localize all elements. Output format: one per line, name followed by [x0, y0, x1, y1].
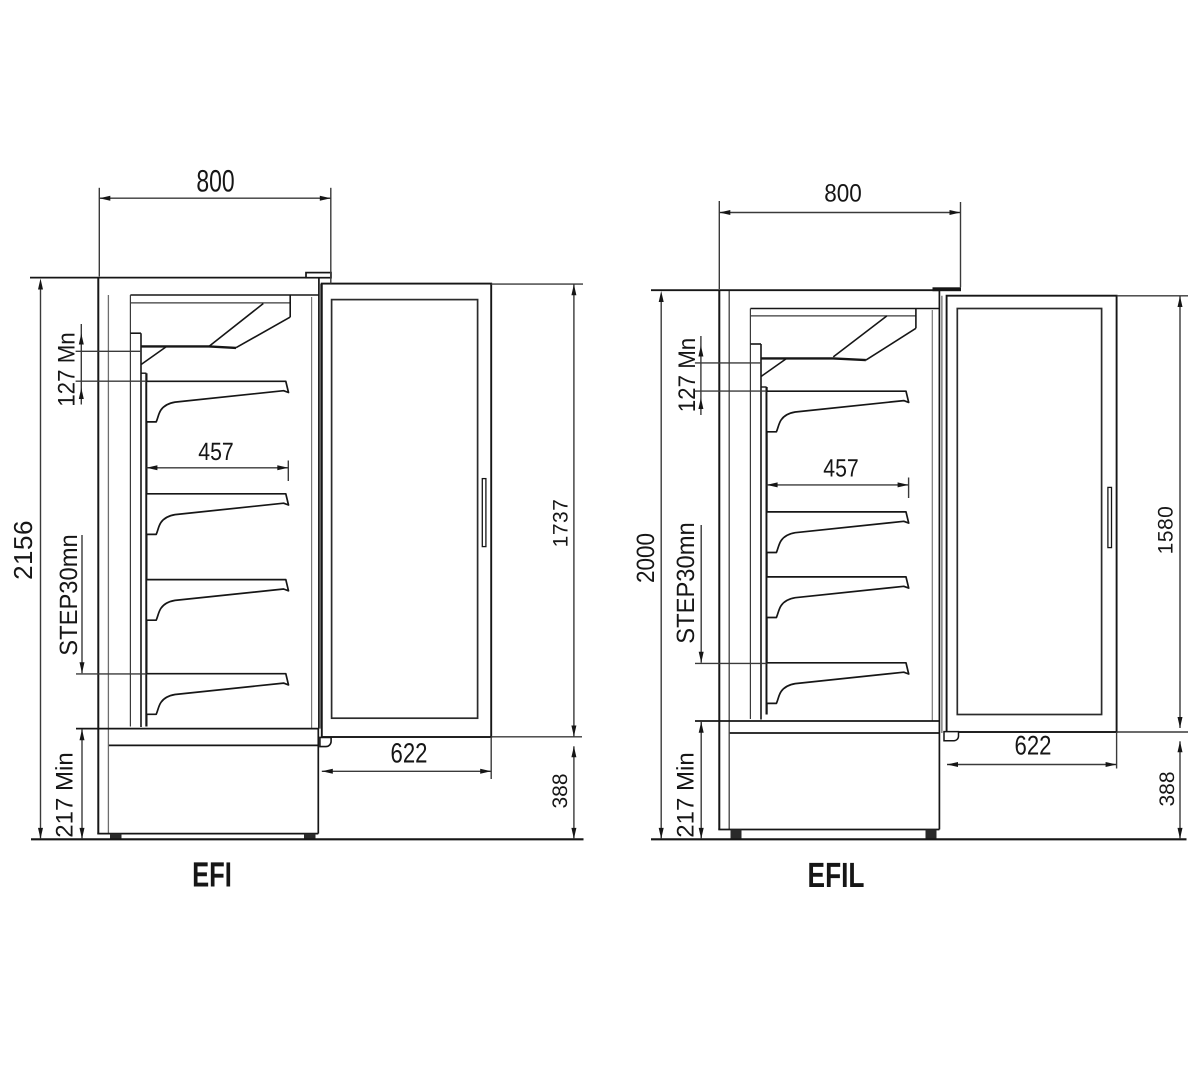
svg-text:622: 622: [391, 738, 428, 769]
svg-text:STEP30mn: STEP30mn: [55, 534, 83, 655]
svg-text:EFIL: EFIL: [808, 856, 865, 895]
svg-text:127 Mn: 127 Mn: [674, 338, 701, 412]
svg-text:388: 388: [549, 773, 572, 808]
svg-text:622: 622: [1015, 730, 1052, 760]
svg-text:127 Mn: 127 Mn: [54, 332, 81, 406]
svg-text:1737: 1737: [550, 499, 573, 548]
svg-text:800: 800: [824, 179, 862, 207]
svg-text:STEP30mn: STEP30mn: [672, 522, 700, 643]
svg-text:800: 800: [196, 164, 234, 199]
svg-text:EFI: EFI: [192, 856, 232, 895]
svg-text:2000: 2000: [632, 533, 660, 583]
svg-text:388: 388: [1156, 771, 1179, 806]
svg-text:217 Min: 217 Min: [52, 752, 79, 837]
svg-text:457: 457: [823, 455, 858, 483]
svg-text:1580: 1580: [1155, 506, 1178, 555]
svg-text:2156: 2156: [8, 520, 38, 580]
svg-text:457: 457: [198, 438, 233, 466]
svg-text:217 Min: 217 Min: [673, 752, 700, 837]
